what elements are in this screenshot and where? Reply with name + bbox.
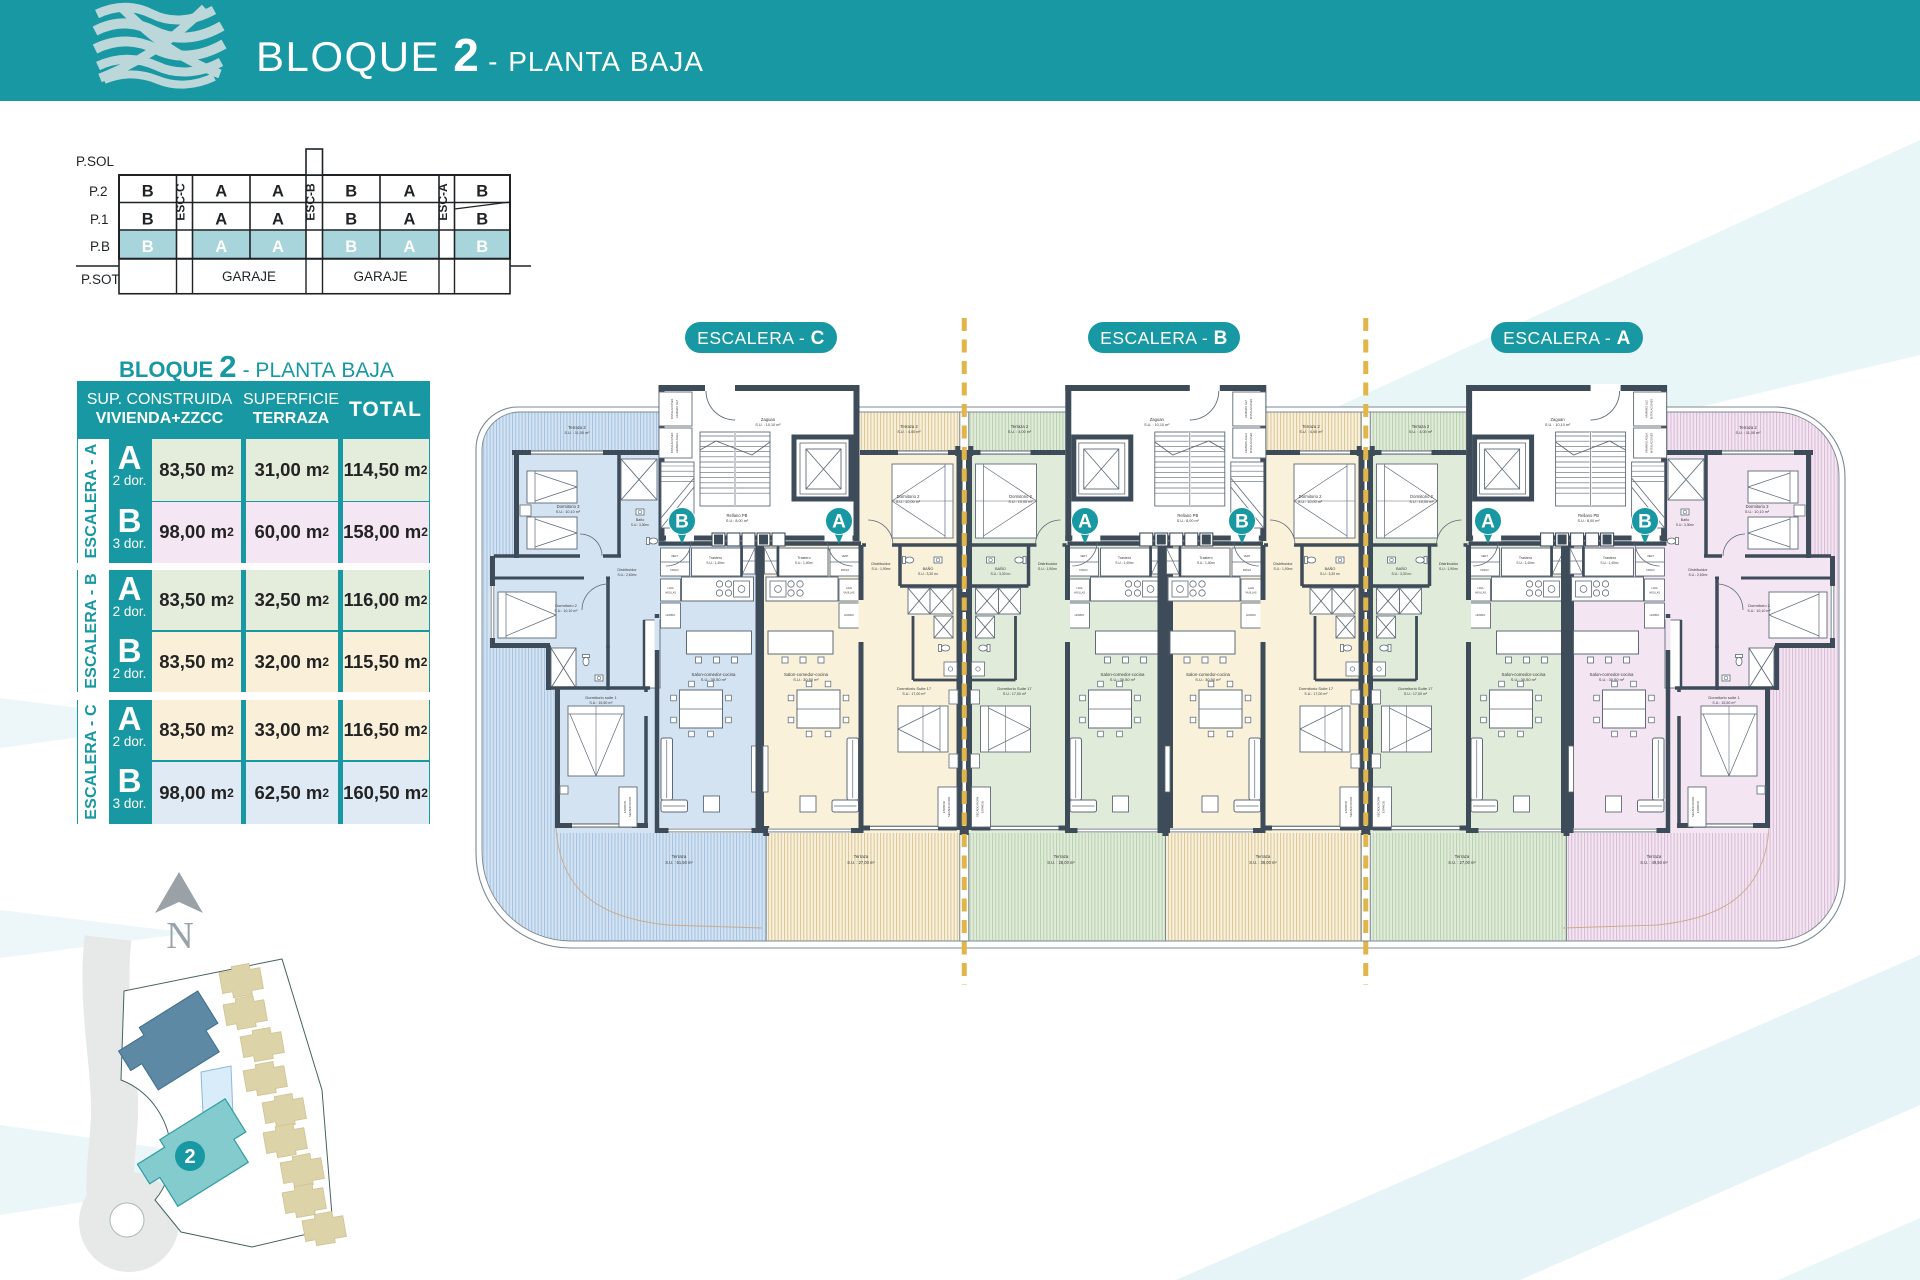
svg-text:B: B — [1235, 512, 1249, 533]
svg-text:S.U. : 10,10 m²: S.U. : 10,10 m² — [755, 423, 781, 427]
svg-text:A: A — [1078, 512, 1092, 533]
svg-text:P.SOL: P.SOL — [76, 154, 115, 169]
svg-text:Terraza: Terraza — [672, 854, 687, 859]
svg-text:LAVA: LAVA — [846, 587, 852, 590]
svg-text:S.U. : 38,00 m²: S.U. : 38,00 m² — [1249, 860, 1277, 865]
svg-text:S.U.: 1,40m²: S.U.: 1,40m² — [1115, 561, 1134, 565]
svg-text:A: A — [272, 183, 284, 201]
svg-text:B: B — [345, 238, 357, 256]
svg-text:Trastero: Trastero — [1118, 556, 1131, 560]
svg-text:VAJILLAS: VAJILLAS — [843, 592, 855, 595]
svg-text:S.U.: 3,30m²: S.U.: 3,30m² — [631, 523, 650, 527]
svg-text:S.U.: 10,00 m²: S.U.: 10,00 m² — [1008, 500, 1033, 504]
svg-text:Rellano PB: Rellano PB — [1578, 513, 1599, 518]
svg-text:VAJILLAS: VAJILLAS — [665, 592, 677, 595]
svg-text:Baño: Baño — [636, 518, 644, 522]
svg-text:INSTALACIONES: INSTALACIONES — [1650, 398, 1654, 419]
svg-text:Dormitorio Suite 17: Dormitorio Suite 17 — [1398, 686, 1433, 691]
svg-text:S.U.: 10,10 m²: S.U.: 10,10 m² — [1747, 609, 1771, 613]
svg-text:B: B — [476, 211, 488, 229]
svg-text:GARAJE: GARAJE — [353, 269, 407, 284]
svg-text:VAJILLAS: VAJILLAS — [1245, 592, 1257, 595]
svg-text:S.U. : 11,00 m²: S.U. : 11,00 m² — [564, 431, 590, 435]
svg-text:HORNO: HORNO — [666, 613, 676, 617]
svg-text:ESPACIO: ESPACIO — [623, 800, 627, 813]
svg-text:ESPACIO: ESPACIO — [1344, 800, 1348, 813]
svg-text:S.U.: 10,10 m²: S.U.: 10,10 m² — [1745, 510, 1770, 514]
svg-text:S.U.: 17,00 m²: S.U.: 17,00 m² — [1304, 692, 1328, 696]
svg-text:BAÑO: BAÑO — [1325, 566, 1336, 571]
svg-text:VERT: VERT — [1080, 554, 1087, 558]
svg-text:S.U. : 28,00 m²: S.U. : 28,00 m² — [1047, 860, 1075, 865]
svg-text:HORNO: HORNO — [1476, 613, 1486, 617]
svg-text:S.U.: 1,90m²: S.U.: 1,90m² — [1439, 567, 1459, 571]
svg-text:ESPACIO: ESPACIO — [1696, 800, 1700, 813]
svg-text:BAÑO: BAÑO — [995, 566, 1006, 571]
svg-text:S.U.: 8,00 m²: S.U.: 8,00 m² — [726, 519, 749, 523]
svg-text:Dormitorio suite 1: Dormitorio suite 1 — [585, 695, 617, 700]
svg-text:HORNO: HORNO — [844, 613, 854, 617]
svg-text:S.U. : 27,00 m²: S.U. : 27,00 m² — [847, 860, 875, 865]
svg-text:Dormitorio 2: Dormitorio 2 — [1009, 494, 1032, 499]
svg-text:Trastero: Trastero — [1603, 556, 1616, 560]
svg-text:Zaguan: Zaguan — [761, 417, 776, 422]
svg-text:S.U.: 1,40m²: S.U.: 1,40m² — [1197, 561, 1216, 565]
svg-text:Dormitorio 3: Dormitorio 3 — [557, 504, 580, 509]
svg-text:INSTALACIONES: INSTALACIONES — [670, 398, 674, 419]
svg-text:SECADO ROPA: SECADO ROPA — [1349, 797, 1353, 817]
svg-text:VERT: VERT — [1244, 554, 1251, 558]
svg-text:S.U.: 30,50 m²: S.U.: 30,50 m² — [1195, 677, 1221, 682]
svg-text:P.2: P.2 — [89, 184, 108, 199]
svg-text:S.U.: 1,90m²: S.U.: 1,90m² — [1038, 567, 1058, 571]
svg-text:Dormitorio 2: Dormitorio 2 — [897, 494, 920, 499]
svg-text:FRIGO: FRIGO — [1243, 568, 1251, 572]
svg-text:A: A — [404, 211, 416, 229]
svg-text:Dormitorio Suite 17: Dormitorio Suite 17 — [1299, 686, 1334, 691]
svg-text:Trastero: Trastero — [1519, 556, 1532, 560]
svg-text:A: A — [832, 512, 846, 533]
svg-text:Dormitorio Suite 17: Dormitorio Suite 17 — [997, 686, 1032, 691]
svg-text:LAVA: LAVA — [1076, 587, 1082, 590]
svg-text:INSTALACIONES: INSTALACIONES — [1249, 398, 1253, 419]
svg-text:Terraza: Terraza — [1054, 854, 1069, 859]
svg-text:Zaguan: Zaguan — [1150, 417, 1165, 422]
svg-text:S.U. : 4,00 m²: S.U. : 4,00 m² — [897, 430, 921, 434]
svg-text:Terraza 2: Terraza 2 — [1739, 425, 1757, 430]
svg-text:S.U. : 51,50 m²: S.U. : 51,50 m² — [665, 860, 693, 865]
svg-text:A: A — [215, 238, 227, 256]
svg-text:S.U.: 30,50 m²: S.U.: 30,50 m² — [1599, 677, 1625, 682]
svg-text:VERT: VERT — [1481, 554, 1488, 558]
svg-text:LAVA: LAVA — [1477, 587, 1483, 590]
svg-text:P.SOT: P.SOT — [81, 272, 120, 287]
svg-text:ESC-B: ESC-B — [303, 183, 317, 221]
svg-text:S.U.: 17,00 m²: S.U.: 17,00 m² — [1003, 692, 1027, 696]
svg-text:S.U.: 3,30 m²: S.U.: 3,30 m² — [990, 572, 1011, 576]
svg-text:S.U. : 4,00 m²: S.U. : 4,00 m² — [1409, 430, 1433, 434]
svg-text:VAJILLAS: VAJILLAS — [1475, 592, 1487, 595]
svg-text:ARMARIO AGUA: ARMARIO AGUA — [675, 433, 679, 453]
svg-text:BAÑO: BAÑO — [923, 566, 934, 571]
svg-text:ESPACIO: ESPACIO — [942, 800, 946, 813]
svg-text:HORNO: HORNO — [1075, 613, 1085, 617]
svg-text:2: 2 — [184, 1146, 195, 1168]
svg-text:Dormitorio Suite 17: Dormitorio Suite 17 — [897, 686, 932, 691]
svg-text:A: A — [272, 238, 284, 256]
svg-text:LAVA: LAVA — [1651, 587, 1657, 590]
svg-text:S.U.: 17,00 m²: S.U.: 17,00 m² — [902, 692, 926, 696]
svg-text:B: B — [142, 183, 154, 201]
svg-text:ARMARIO AGUA: ARMARIO AGUA — [1645, 433, 1649, 453]
svg-text:S.U.: 10,10 m²: S.U.: 10,10 m² — [556, 510, 581, 514]
svg-text:S.U.: 17,00 m²: S.U.: 17,00 m² — [1404, 692, 1428, 696]
svg-text:GARAJE: GARAJE — [222, 269, 276, 284]
svg-text:SECADO ROPA: SECADO ROPA — [1377, 797, 1381, 817]
svg-text:ESPACIO: ESPACIO — [981, 800, 985, 813]
svg-text:SECADO ROPA: SECADO ROPA — [628, 797, 632, 817]
svg-text:VAJILLAS: VAJILLAS — [1074, 592, 1086, 595]
svg-text:VAJILLAS: VAJILLAS — [1649, 592, 1661, 595]
svg-text:S.U.: 1,40m²: S.U.: 1,40m² — [706, 561, 725, 565]
svg-text:FRIGO: FRIGO — [670, 568, 678, 572]
svg-text:Dormitorio 2: Dormitorio 2 — [1748, 603, 1771, 608]
svg-text:S.U.: 3,30 m²: S.U.: 3,30 m² — [1320, 572, 1341, 576]
svg-text:A: A — [1481, 512, 1495, 533]
svg-text:B: B — [345, 183, 357, 201]
svg-text:FRIGO: FRIGO — [1480, 568, 1488, 572]
svg-text:S.U.: 1,40m²: S.U.: 1,40m² — [1600, 561, 1619, 565]
svg-text:B: B — [675, 512, 689, 533]
svg-text:Trastero: Trastero — [797, 556, 810, 560]
svg-text:P.B: P.B — [90, 239, 110, 254]
svg-text:S.U. : 10,10 m²: S.U. : 10,10 m² — [1144, 423, 1170, 427]
svg-text:INSTALACIONES: INSTALACIONES — [1650, 432, 1654, 453]
svg-text:B: B — [345, 211, 357, 229]
svg-text:Dormitorio 2: Dormitorio 2 — [1299, 494, 1322, 499]
svg-text:Distribuidor: Distribuidor — [1038, 562, 1058, 566]
svg-text:S.U.: 30,50 m²: S.U.: 30,50 m² — [1511, 677, 1537, 682]
svg-text:INSTALACIONES: INSTALACIONES — [1249, 432, 1253, 453]
svg-text:S.U.: 10,00 m²: S.U.: 10,00 m² — [1298, 500, 1323, 504]
svg-text:INSTALACIONES: INSTALACIONES — [670, 432, 674, 453]
svg-text:S.U.: 10,00 m²: S.U.: 10,00 m² — [896, 500, 921, 504]
svg-text:Terraza: Terraza — [854, 854, 869, 859]
svg-text:S.U.: 8,00 m²: S.U.: 8,00 m² — [1177, 519, 1200, 523]
svg-text:S.U. : 11,00 m²: S.U. : 11,00 m² — [1735, 431, 1761, 435]
svg-text:Terraza 2: Terraza 2 — [1011, 424, 1029, 429]
svg-text:VERT: VERT — [842, 554, 849, 558]
svg-text:ARMARIO LUZ: ARMARIO LUZ — [1244, 400, 1248, 418]
svg-text:B: B — [476, 238, 488, 256]
svg-text:ESC-C: ESC-C — [174, 183, 188, 221]
svg-text:ESCALERA - A: ESCALERA - A — [1503, 328, 1631, 349]
svg-text:VERT: VERT — [671, 554, 678, 558]
svg-text:Terraza 2: Terraza 2 — [568, 425, 586, 430]
svg-text:Dormitorio suite 1: Dormitorio suite 1 — [1708, 695, 1740, 700]
svg-text:FRIGO: FRIGO — [1079, 568, 1087, 572]
svg-text:S.U.: 30,50 m²: S.U.: 30,50 m² — [701, 677, 727, 682]
svg-text:A: A — [404, 183, 416, 201]
svg-text:Terraza: Terraza — [1647, 854, 1662, 859]
svg-text:S.U. : 27,00 m²: S.U. : 27,00 m² — [1448, 860, 1476, 865]
svg-text:A: A — [272, 211, 284, 229]
svg-text:B: B — [142, 211, 154, 229]
svg-text:S.U.: 15,50 m²: S.U.: 15,50 m² — [589, 701, 613, 705]
svg-text:Distribuidor: Distribuidor — [1688, 568, 1708, 572]
svg-text:Terraza 2: Terraza 2 — [900, 424, 918, 429]
svg-text:Rellano PB: Rellano PB — [727, 513, 748, 518]
svg-text:S.U.: 2,60m²: S.U.: 2,60m² — [617, 573, 637, 577]
svg-text:Zaguan: Zaguan — [1550, 417, 1565, 422]
svg-text:S.U.: 3,30m²: S.U.: 3,30m² — [1676, 523, 1695, 527]
svg-text:HORNO: HORNO — [1246, 613, 1256, 617]
svg-text:LAVA: LAVA — [667, 587, 673, 590]
svg-text:Terraza 2: Terraza 2 — [1412, 424, 1430, 429]
svg-text:Distribuidor: Distribuidor — [1439, 562, 1459, 566]
svg-text:Terraza: Terraza — [1455, 854, 1470, 859]
svg-text:S.U. : 4,00 m²: S.U. : 4,00 m² — [1008, 430, 1032, 434]
svg-text:S.U.: 1,90m²: S.U.: 1,90m² — [871, 567, 891, 571]
svg-text:S.U. : 10,10 m²: S.U. : 10,10 m² — [1545, 423, 1571, 427]
svg-text:S.U.: 2,60m²: S.U.: 2,60m² — [1688, 573, 1708, 577]
svg-text:Distribuidor: Distribuidor — [617, 568, 637, 572]
svg-text:ARMARIO LUZ: ARMARIO LUZ — [1645, 400, 1649, 418]
svg-text:S.U.: 3,30 m²: S.U.: 3,30 m² — [1391, 572, 1412, 576]
svg-text:Dormitorio 2: Dormitorio 2 — [555, 603, 578, 608]
svg-text:BAÑO: BAÑO — [1396, 566, 1407, 571]
svg-text:ARMARIO LUZ: ARMARIO LUZ — [675, 400, 679, 418]
svg-text:A: A — [215, 183, 227, 201]
svg-text:Distribuidor: Distribuidor — [871, 562, 891, 566]
svg-text:Terraza: Terraza — [1256, 854, 1271, 859]
svg-text:S.U.: 10,10 m²: S.U.: 10,10 m² — [554, 609, 578, 613]
svg-text:B: B — [476, 183, 488, 201]
svg-text:A: A — [404, 238, 416, 256]
svg-text:ESPACIO: ESPACIO — [1382, 800, 1386, 813]
svg-text:A: A — [215, 211, 227, 229]
svg-text:S.U.: 1,40m²: S.U.: 1,40m² — [1516, 561, 1535, 565]
svg-text:Trastero: Trastero — [709, 556, 722, 560]
svg-text:P.1: P.1 — [90, 212, 109, 227]
svg-text:ESC-A: ESC-A — [436, 183, 450, 221]
svg-text:Dormitorio 3: Dormitorio 3 — [1746, 504, 1769, 509]
svg-text:LAVA: LAVA — [1248, 587, 1254, 590]
svg-text:HORNO: HORNO — [1650, 613, 1660, 617]
svg-text:Distribuidor: Distribuidor — [1273, 562, 1293, 566]
svg-text:Trastero: Trastero — [1199, 556, 1212, 560]
svg-text:S.U.: 30,50 m²: S.U.: 30,50 m² — [793, 677, 819, 682]
svg-text:FRIGO: FRIGO — [1646, 568, 1654, 572]
svg-text:VERT: VERT — [1647, 554, 1654, 558]
svg-text:S.U.: 1,90m²: S.U.: 1,90m² — [1273, 567, 1293, 571]
svg-text:FRIGO: FRIGO — [841, 568, 849, 572]
svg-text:B: B — [1638, 512, 1652, 533]
svg-text:S.U. : 4,00 m²: S.U. : 4,00 m² — [1299, 430, 1323, 434]
svg-text:ARMARIO AGUA: ARMARIO AGUA — [1244, 433, 1248, 453]
svg-text:S.U.: 10,00 m²: S.U.: 10,00 m² — [1409, 500, 1434, 504]
svg-text:S.U.: 30,50 m²: S.U.: 30,50 m² — [1110, 677, 1136, 682]
svg-text:ESCALERA - B: ESCALERA - B — [1100, 328, 1228, 349]
svg-text:S.U.: 3,30 m²: S.U.: 3,30 m² — [918, 572, 939, 576]
svg-text:SECADO ROPA: SECADO ROPA — [1691, 797, 1695, 817]
svg-text:B: B — [142, 238, 154, 256]
svg-text:ESCALERA - C: ESCALERA - C — [697, 328, 825, 349]
svg-text:S.U.: 8,00 m²: S.U.: 8,00 m² — [1578, 519, 1601, 523]
svg-text:Baño: Baño — [1681, 518, 1689, 522]
svg-text:S.U. : 49,50 m²: S.U. : 49,50 m² — [1640, 860, 1668, 865]
svg-text:SECADO ROPA: SECADO ROPA — [947, 797, 951, 817]
svg-text:S.U.: 1,40m²: S.U.: 1,40m² — [795, 561, 814, 565]
svg-text:N: N — [166, 915, 193, 957]
svg-text:S.U.: 15,50 m²: S.U.: 15,50 m² — [1712, 701, 1736, 705]
svg-text:SECADO ROPA: SECADO ROPA — [976, 797, 980, 817]
svg-text:Terraza 2: Terraza 2 — [1302, 424, 1320, 429]
svg-text:Dormitorio 2: Dormitorio 2 — [1410, 494, 1433, 499]
svg-text:Rellano PB: Rellano PB — [1177, 513, 1198, 518]
